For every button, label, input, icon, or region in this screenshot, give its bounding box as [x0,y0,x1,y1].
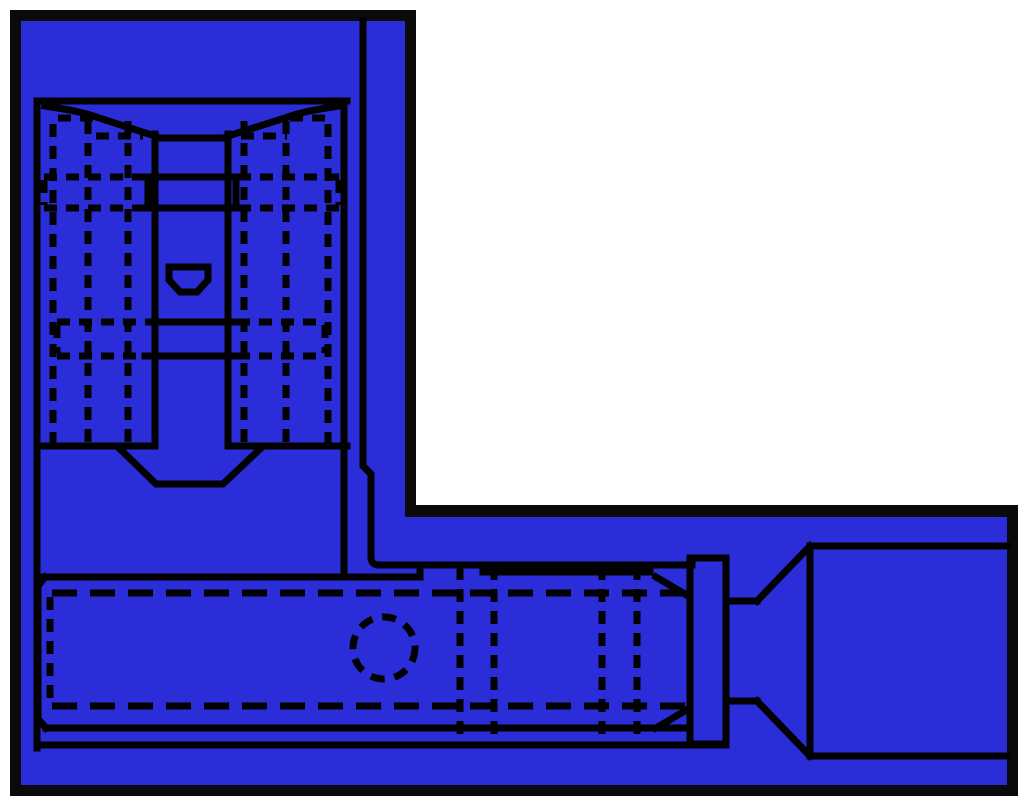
screenshot-stage [0,0,1024,804]
terminal-diagram [0,0,1024,804]
